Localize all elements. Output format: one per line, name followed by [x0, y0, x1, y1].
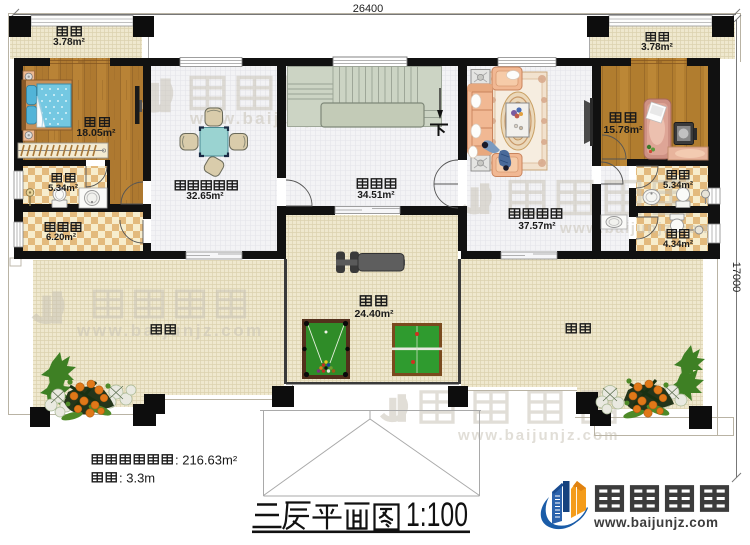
svg-text:37.57m²: 37.57m² — [518, 221, 556, 232]
svg-text:www.baijunjz.com: www.baijunjz.com — [593, 515, 719, 530]
svg-text:17000: 17000 — [730, 262, 742, 293]
svg-text:32.65m²: 32.65m² — [186, 191, 224, 202]
svg-text:24.40m²: 24.40m² — [354, 308, 394, 320]
svg-text:www.baijunjz.com: www.baijunjz.com — [559, 220, 713, 237]
svg-text:4.34m²: 4.34m² — [663, 239, 693, 250]
svg-text:15.78m²: 15.78m² — [603, 124, 643, 136]
svg-text:: 3.3m: : 3.3m — [119, 471, 155, 486]
svg-text:1:100: 1:100 — [406, 496, 468, 534]
svg-text:26400: 26400 — [353, 3, 384, 15]
svg-text:34.51m²: 34.51m² — [357, 190, 395, 201]
svg-text:3.78m²: 3.78m² — [53, 37, 85, 48]
svg-text:18.05m²: 18.05m² — [76, 127, 116, 139]
svg-text:: 216.63m²: : 216.63m² — [175, 453, 238, 468]
svg-text:3.78m²: 3.78m² — [641, 42, 673, 53]
svg-text:5.34m²: 5.34m² — [48, 183, 78, 194]
svg-text:6.20m²: 6.20m² — [46, 232, 76, 243]
svg-text:5.34m²: 5.34m² — [663, 180, 693, 191]
